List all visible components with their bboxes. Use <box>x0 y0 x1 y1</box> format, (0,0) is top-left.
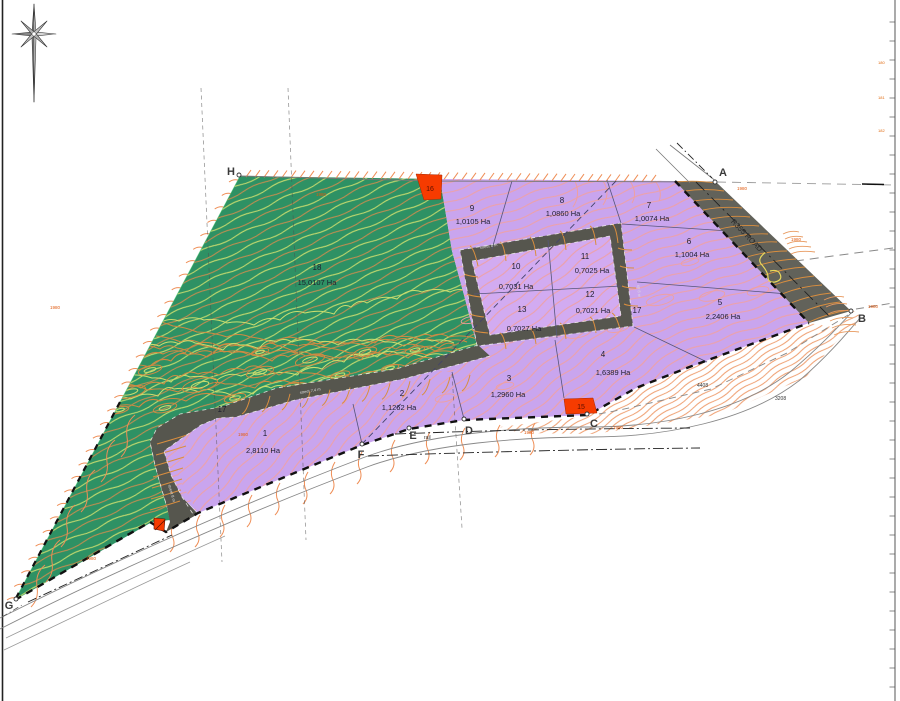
svg-text:1,0860 Ha: 1,0860 Ha <box>546 209 581 218</box>
svg-text:2,2406 Ha: 2,2406 Ha <box>706 312 741 321</box>
svg-text:D: D <box>465 425 473 437</box>
svg-text:7: 7 <box>647 201 652 210</box>
svg-text:E: E <box>409 430 416 442</box>
svg-text:1980: 1980 <box>238 432 249 437</box>
svg-text:1980: 1980 <box>524 430 535 435</box>
svg-text:4: 4 <box>601 350 606 359</box>
svg-text:0,7027 Ha: 0,7027 Ha <box>507 324 542 333</box>
svg-text:1980: 1980 <box>316 192 327 197</box>
svg-text:B: B <box>858 313 866 325</box>
svg-text:181: 181 <box>878 95 885 100</box>
svg-text:12: 12 <box>586 290 595 299</box>
svg-text:0,7021 Ha: 0,7021 Ha <box>576 306 611 315</box>
svg-text:1,0105 Ha: 1,0105 Ha <box>456 217 491 226</box>
svg-text:1: 1 <box>263 429 268 438</box>
svg-text:1,2960 Ha: 1,2960 Ha <box>491 390 526 399</box>
svg-text:H: H <box>227 166 235 178</box>
svg-text:1,1262 Ha: 1,1262 Ha <box>382 403 417 412</box>
svg-text:17: 17 <box>633 306 642 315</box>
svg-text:15,0107 Ha: 15,0107 Ha <box>298 278 338 287</box>
svg-text:3: 3 <box>507 374 512 383</box>
svg-text:2: 2 <box>400 389 405 398</box>
svg-text:4408: 4408 <box>697 383 708 389</box>
svg-text:1980: 1980 <box>613 425 624 430</box>
svg-text:8: 8 <box>560 196 565 205</box>
svg-text:1980: 1980 <box>791 237 802 242</box>
svg-text:15: 15 <box>577 404 585 411</box>
svg-text:1980: 1980 <box>737 186 748 191</box>
svg-text:182: 182 <box>878 128 885 133</box>
svg-text:C: C <box>590 418 598 430</box>
svg-text:1,0074 Ha: 1,0074 Ha <box>635 214 670 223</box>
svg-text:G: G <box>5 600 14 612</box>
svg-text:5: 5 <box>718 298 723 307</box>
svg-text:9: 9 <box>470 204 475 213</box>
svg-text:10: 10 <box>512 262 521 271</box>
svg-text:1,1004 Ha: 1,1004 Ha <box>675 250 710 259</box>
svg-text:3208: 3208 <box>775 396 786 402</box>
svg-text:2,8110 Ha: 2,8110 Ha <box>246 446 281 455</box>
svg-text:rail: rail <box>424 435 431 441</box>
svg-text:F: F <box>358 449 365 461</box>
svg-text:13: 13 <box>518 305 527 314</box>
svg-text:A: A <box>719 167 727 179</box>
svg-text:180: 180 <box>878 60 885 65</box>
svg-text:6: 6 <box>687 237 692 246</box>
svg-text:1980: 1980 <box>50 305 61 310</box>
svg-text:0,7025 Ha: 0,7025 Ha <box>575 266 610 275</box>
svg-text:17: 17 <box>218 405 227 414</box>
svg-text:0,7031 Ha: 0,7031 Ha <box>499 282 534 291</box>
svg-text:1980: 1980 <box>86 556 97 561</box>
svg-text:1980: 1980 <box>868 304 879 309</box>
svg-text:11: 11 <box>581 252 590 261</box>
svg-text:1,6389 Ha: 1,6389 Ha <box>596 368 631 377</box>
svg-text:16: 16 <box>426 186 434 193</box>
svg-text:18: 18 <box>313 263 322 272</box>
